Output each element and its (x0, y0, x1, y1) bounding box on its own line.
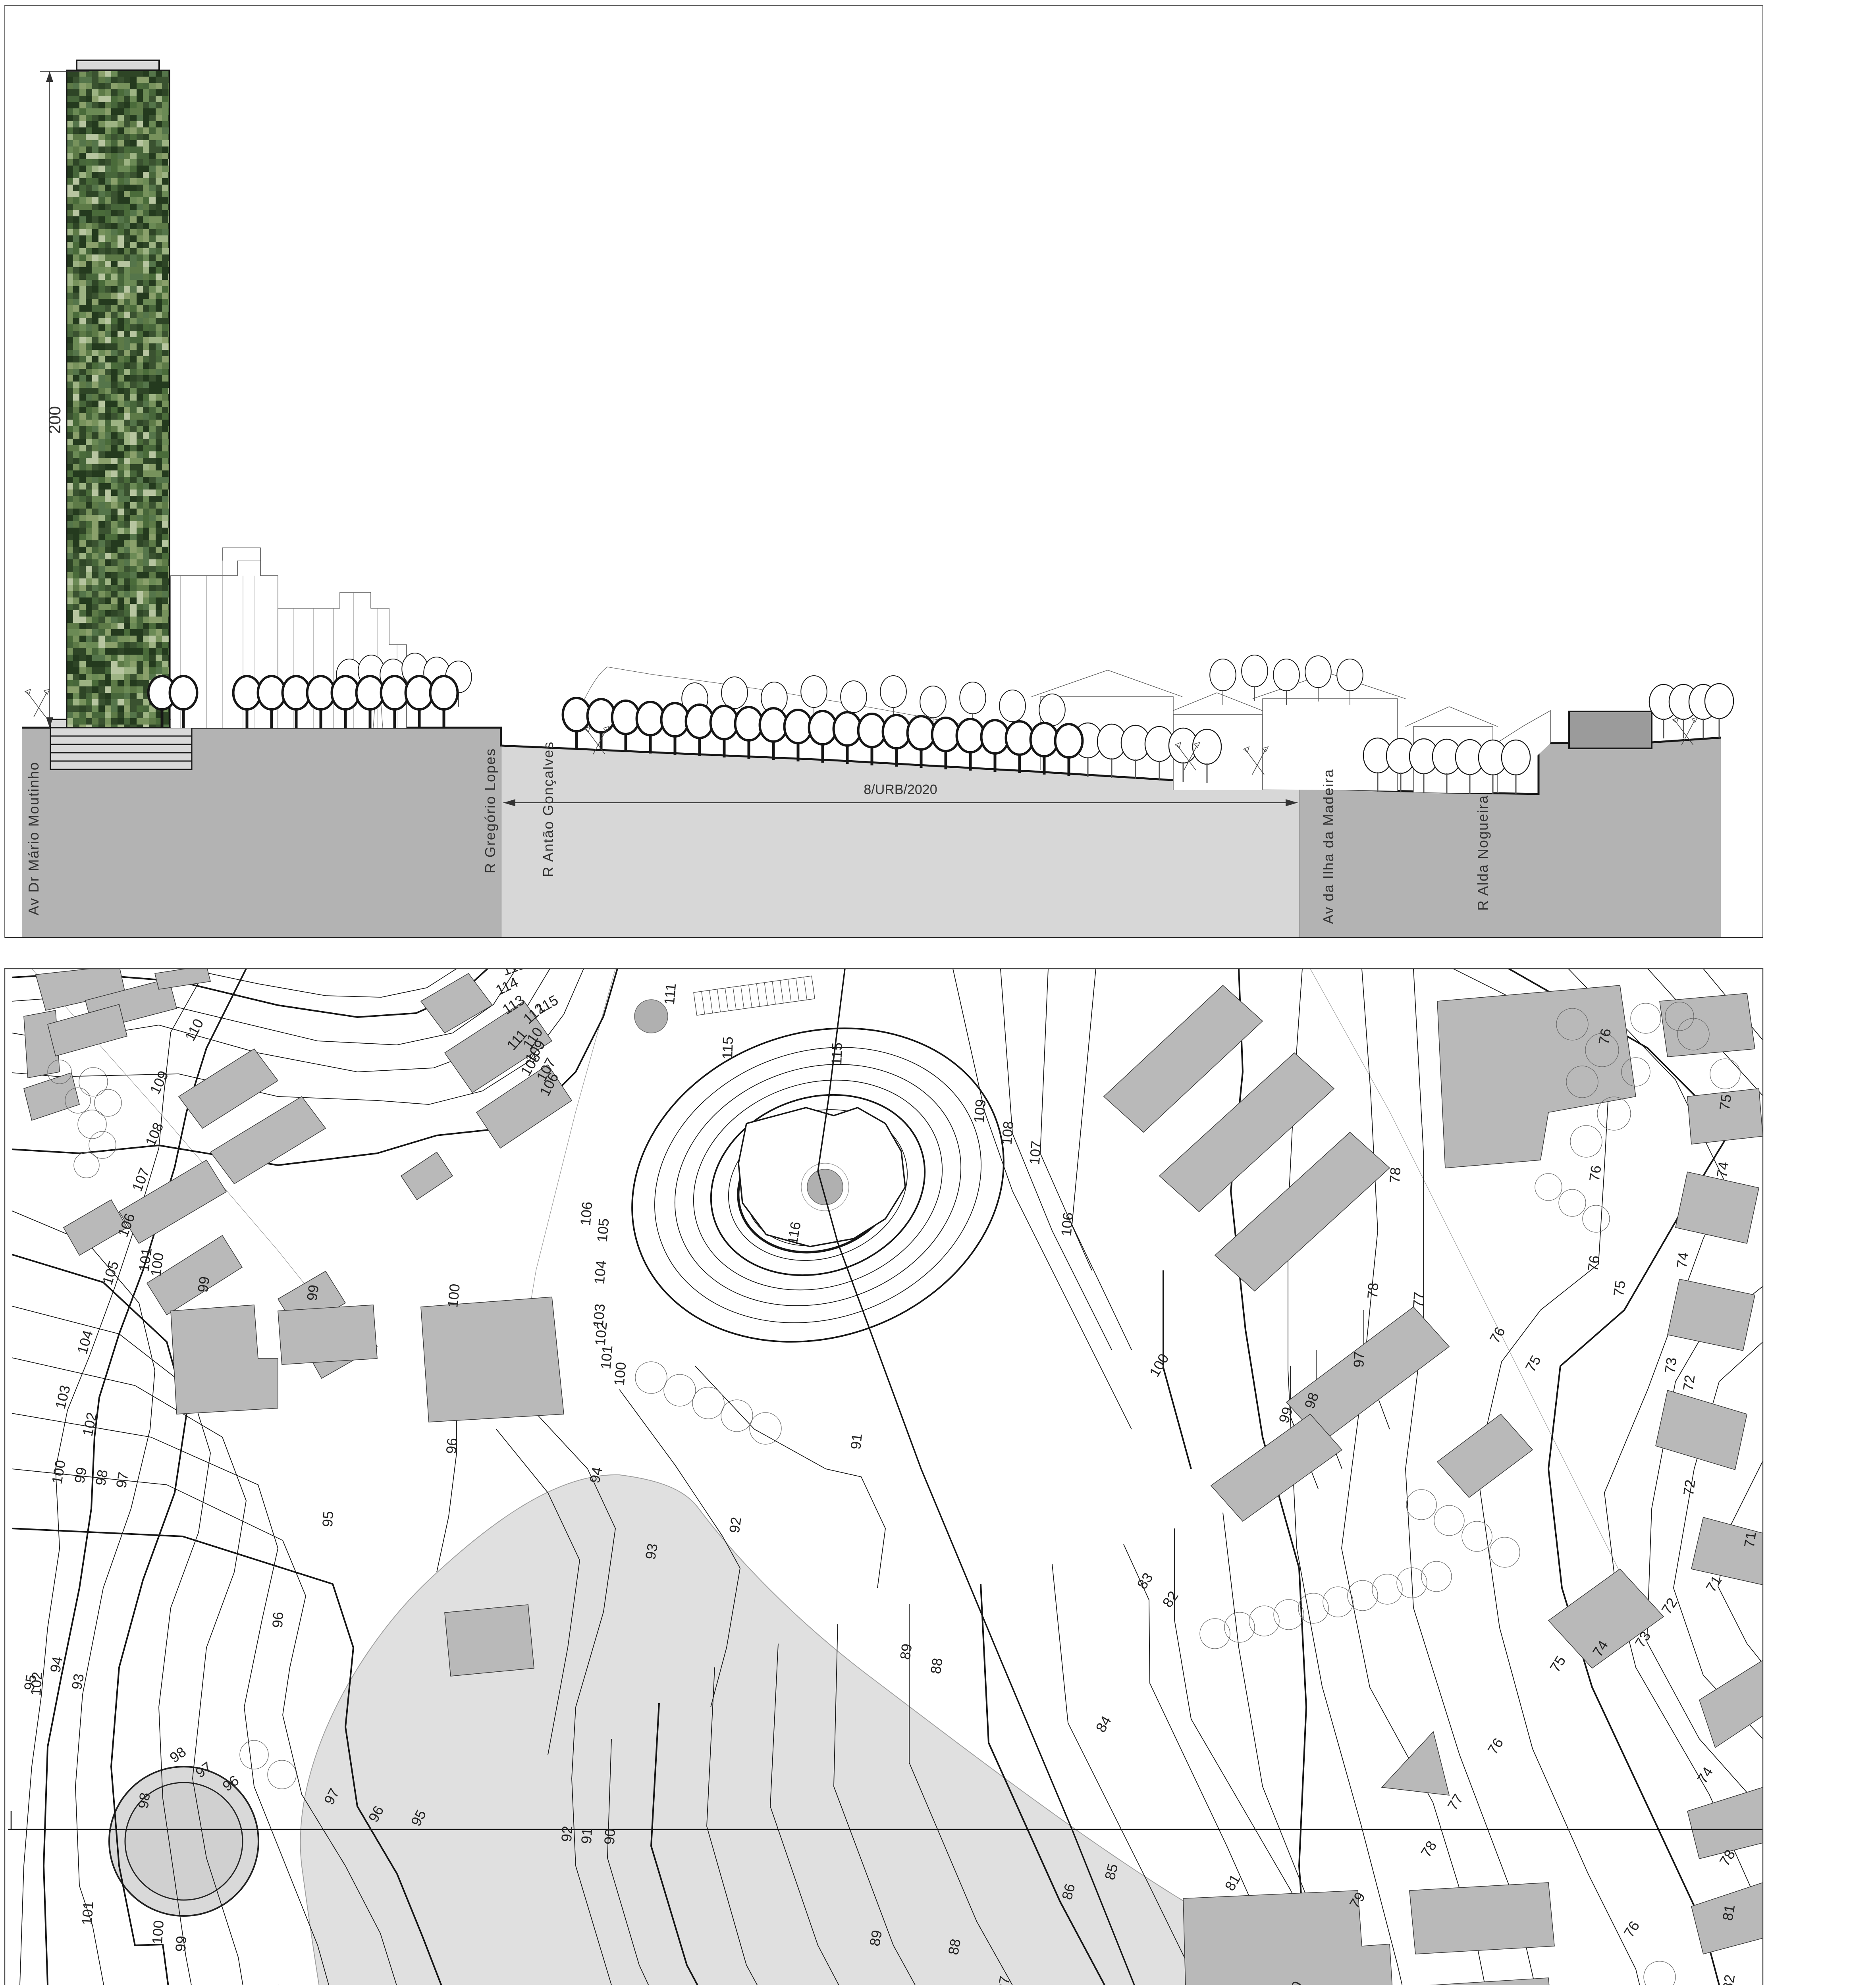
contour-label: 75 (1610, 1280, 1629, 1297)
tree-icon (357, 676, 384, 709)
green-tower (67, 70, 170, 728)
contour-label: 110 (181, 1016, 206, 1044)
tree-icon (1631, 1003, 1661, 1033)
building-footprint (421, 973, 492, 1033)
contour-label: 84 (1092, 1713, 1114, 1735)
tree-icon (908, 716, 935, 750)
tree-icon (78, 1110, 106, 1139)
building-footprint (278, 1305, 377, 1364)
tree-icon (834, 712, 861, 746)
tree-icon (1298, 1593, 1328, 1623)
contour-label: 73 (1662, 1357, 1680, 1374)
tree-icon (1337, 659, 1363, 691)
tree-icon (268, 1760, 296, 1789)
building-footprint (1660, 993, 1755, 1057)
tree-icon (1305, 656, 1331, 688)
section-panel: 2008/URB/2020Av Dr Mário MoutinhoR Gregó… (5, 6, 1763, 938)
tree-icon (79, 1068, 108, 1096)
contour-label: 89 (897, 1643, 915, 1661)
contour-label: 97 (1350, 1351, 1367, 1368)
tree-icon (1559, 1189, 1586, 1216)
contour-label: 115 (719, 1036, 736, 1060)
building-footprint (1699, 1660, 1763, 1748)
contour-label: 105 (99, 1259, 122, 1287)
contour-label: 94 (586, 1466, 605, 1485)
contour-label: 75 (1716, 1093, 1735, 1111)
contour-label: 88 (945, 1938, 964, 1956)
contour-label: 75 (1546, 1653, 1569, 1675)
urb-reference-label: 8/URB/2020 (864, 782, 937, 797)
tree-icon (1502, 740, 1530, 775)
drawing-sheet: 2008/URB/2020Av Dr Mário MoutinhoR Gregó… (0, 0, 1876, 1985)
contour-label: 107 (1026, 1140, 1045, 1165)
contour-label: 99 (172, 1935, 190, 1952)
contour-line (1072, 969, 1132, 1350)
contour-label: 92 (726, 1516, 744, 1534)
tree-icon (1705, 684, 1733, 719)
tree-icon (883, 715, 910, 748)
contour-line (191, 969, 457, 997)
building-footprint (421, 1297, 564, 1422)
tree-icon (721, 1400, 753, 1432)
contour-label: 99 (71, 1466, 90, 1485)
building-footprint (1675, 1172, 1759, 1243)
tree-icon (1372, 1574, 1402, 1604)
contour-label: 76 (1620, 1918, 1643, 1941)
tree-icon (1273, 659, 1300, 691)
contour-label: 100 (149, 1920, 167, 1945)
tree-icon (1039, 694, 1065, 726)
contour-label: 71 (1741, 1531, 1759, 1549)
building-footprint (24, 1073, 79, 1120)
tree-icon (1210, 659, 1236, 691)
section-and-plan-canvas: 2008/URB/2020Av Dr Mário MoutinhoR Gregó… (0, 0, 1876, 1985)
contour-label: 98 (167, 1743, 189, 1766)
street-label: Av da Ilha da Madeira (1320, 769, 1336, 924)
tree-icon (999, 690, 1026, 722)
tree-icon (1055, 724, 1083, 757)
tree-icon (1434, 1505, 1464, 1536)
tree-icon (880, 676, 906, 707)
contour-line (437, 1409, 457, 1572)
contour-label: 100 (444, 1283, 463, 1309)
tree-icon (1031, 723, 1058, 756)
plant-marker-icon (25, 689, 50, 717)
tree-icon (635, 1362, 667, 1393)
tree-icon (1249, 1606, 1279, 1636)
contour-label: 99 (195, 1276, 213, 1293)
tree-icon (692, 1387, 724, 1419)
contour-label: 90 (601, 1828, 619, 1845)
contour-label: 105 (594, 1218, 612, 1243)
tree-icon (1348, 1580, 1378, 1611)
tree-icon (1710, 1059, 1740, 1089)
contour-line (1163, 1270, 1191, 1469)
tree-icon (430, 676, 458, 709)
contour-label: 89 (866, 1929, 885, 1948)
tree-icon (1242, 655, 1268, 687)
contour-label: 102 (79, 1411, 100, 1438)
contour-label: 102 (592, 1321, 610, 1346)
contour-label: 100 (48, 1459, 69, 1485)
tree-icon (283, 676, 310, 709)
tree-icon (588, 699, 615, 732)
tree-icon (1224, 1612, 1255, 1642)
tree-icon (307, 676, 335, 709)
street-label: R Gregório Lopes (482, 748, 498, 873)
contour-label: 81 (1719, 1904, 1738, 1922)
tree-icon (809, 711, 837, 744)
tree-icon (170, 676, 197, 709)
contour-label: 76 (1595, 1027, 1614, 1046)
tree-icon (686, 705, 713, 738)
tree-icon (332, 676, 359, 709)
tree-icon (960, 682, 986, 714)
contour-label: 104 (591, 1260, 609, 1285)
contour-label: 74 (1674, 1251, 1692, 1269)
contour-line (1001, 969, 1112, 1350)
contour-label: 101 (79, 1901, 96, 1926)
tree-icon (1200, 1619, 1230, 1649)
tree-icon (563, 698, 590, 731)
contour-label: 96 (269, 1611, 287, 1628)
contour-label: 88 (927, 1657, 946, 1675)
tree-icon (637, 702, 664, 735)
stairs-icon (694, 976, 815, 1015)
contour-label: 109 (147, 1068, 172, 1097)
tower-cap (77, 60, 159, 70)
contour-label: 82 (1159, 1588, 1181, 1610)
tree-icon (957, 719, 984, 752)
contour-label: 98 (135, 1792, 153, 1810)
contour-label: 100 (1146, 1351, 1172, 1380)
contour-label: 104 (74, 1328, 96, 1356)
contour-label: 100 (147, 1252, 167, 1278)
contour-label: 108 (999, 1120, 1017, 1145)
building-footprint (1691, 1517, 1763, 1585)
contour-label: 106 (577, 1201, 596, 1226)
contour-label: 98 (92, 1469, 111, 1487)
site-plan-panel: 1101091081071061051041031151141131121111… (8, 956, 1771, 1985)
tree-icon (932, 718, 960, 751)
tree-icon (1583, 1205, 1610, 1232)
contour-line (953, 969, 1132, 1429)
contour-label: 95 (21, 1673, 39, 1692)
building-footprint (1382, 1732, 1449, 1795)
tree-icon (1597, 1097, 1631, 1130)
building-footprint (1211, 1414, 1342, 1521)
contour-label: 95 (319, 1511, 337, 1528)
tree-icon (406, 676, 433, 709)
tree-icon (94, 1089, 121, 1116)
tree-icon (1490, 1537, 1520, 1567)
contour-label: 76 (1585, 1255, 1603, 1272)
street-label: R Alda Nogueira (1475, 795, 1491, 911)
tree-icon (981, 720, 1009, 754)
tree-icon (1006, 721, 1033, 755)
contour-label: 81 (1221, 1871, 1244, 1893)
tree-icon (661, 703, 689, 736)
tree-icon (750, 1413, 781, 1444)
tree-icon (664, 1374, 696, 1406)
contour-label: 111 (661, 983, 679, 1006)
tree-icon (240, 1740, 268, 1769)
building-footprint (445, 1605, 534, 1676)
building-footprint (171, 1305, 278, 1414)
tree-icon (1323, 1587, 1353, 1617)
contour-label: 74 (1714, 1161, 1732, 1179)
contour-label: 99 (304, 1284, 322, 1302)
tree-icon (1570, 1125, 1602, 1157)
tree-icon (381, 676, 409, 709)
contour-label: 100 (611, 1361, 629, 1386)
tree-icon (711, 706, 738, 739)
contour-label: 71 (1702, 1573, 1725, 1595)
tree-icon (1421, 1561, 1452, 1592)
contour-label: 82 (1719, 1973, 1738, 1985)
tree-icon (920, 686, 946, 718)
contour-label: 94 (47, 1655, 66, 1674)
contour-label: 75 (1522, 1353, 1544, 1374)
building-footprint (1437, 1414, 1533, 1497)
contour-label: 96 (443, 1437, 460, 1454)
contour-label: 109 (971, 1098, 989, 1124)
contour-label: 72 (1680, 1374, 1698, 1392)
tree-icon (735, 707, 763, 740)
building-footprint (179, 1049, 278, 1128)
tree-icon (841, 681, 867, 713)
tree-icon (1406, 1490, 1436, 1520)
contour-label: 97 (113, 1471, 131, 1490)
contour-label: 74 (1694, 1764, 1716, 1786)
contour-label: 78 (1386, 1167, 1404, 1184)
contour-label: 93 (68, 1673, 87, 1691)
tree-icon (785, 710, 812, 743)
contour-label: 72 (1680, 1479, 1699, 1497)
tree-icon (74, 1152, 99, 1178)
contour-label: 115 (828, 1042, 845, 1066)
contour-label: 106 (1058, 1212, 1076, 1237)
contour-line (1288, 969, 1441, 1985)
contour-label: 92 (558, 1825, 576, 1842)
building-footprint (1656, 1390, 1747, 1470)
contour-label: 76 (1586, 1164, 1604, 1182)
tree-icon (233, 676, 261, 709)
tree-icon (1274, 1600, 1304, 1630)
tree-icon (1462, 1521, 1492, 1551)
contour-label: 91 (578, 1827, 596, 1844)
building-footprint (48, 1004, 127, 1056)
tree-icon (858, 714, 886, 747)
building-footprint (1421, 1978, 1556, 1985)
contour-label: 78 (1417, 1838, 1440, 1860)
building-footprint (401, 1152, 453, 1200)
tree-icon (1644, 1961, 1675, 1985)
tree-icon (721, 677, 748, 709)
contour-label: 91 (847, 1433, 865, 1450)
street-label: Av Dr Mário Moutinho (25, 761, 42, 915)
contour-label: 103 (52, 1384, 73, 1411)
contour-label: 76 (1484, 1735, 1506, 1758)
building-footprint (1668, 1279, 1755, 1351)
tower-height-dimension: 200 (45, 406, 64, 434)
contour-label: 93 (642, 1542, 661, 1561)
contour-label: 78 (1364, 1282, 1382, 1299)
tree-icon (258, 676, 285, 709)
contour-label: 77 (1410, 1291, 1427, 1309)
street-label: R Antão Gonçalves (540, 741, 556, 877)
contour-label: 107 (129, 1166, 153, 1194)
tree-icon (801, 676, 827, 707)
tree-icon (1535, 1174, 1562, 1201)
tree-icon (612, 701, 640, 734)
tree-icon (760, 708, 787, 742)
building-footprint (1409, 1883, 1554, 1954)
contour-label: 108 (142, 1120, 167, 1149)
